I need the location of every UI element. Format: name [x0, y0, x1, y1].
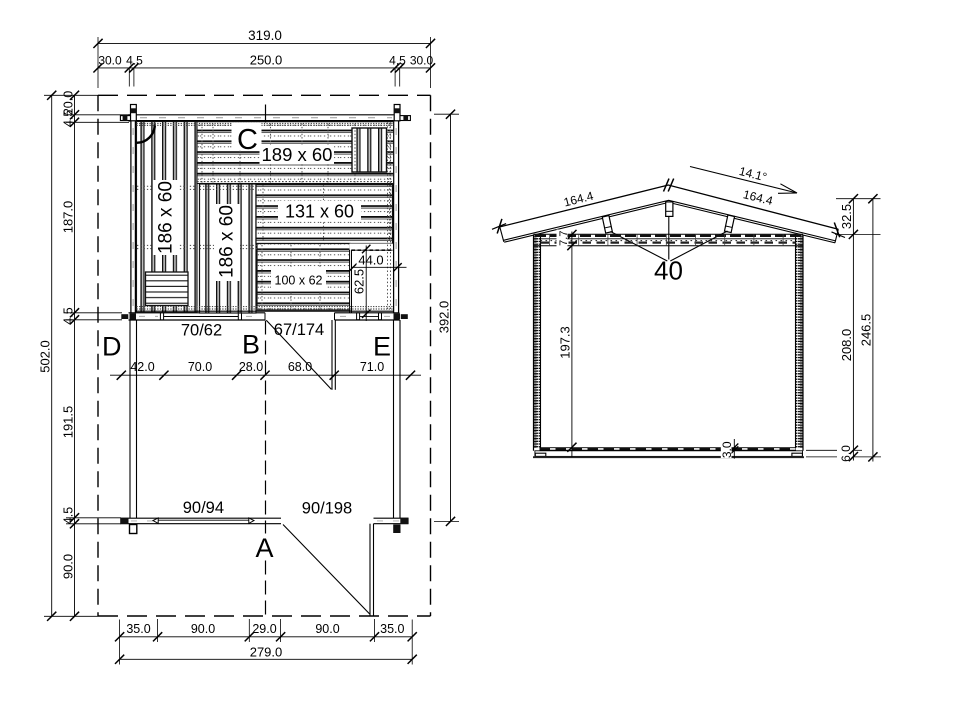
svg-text:186 x 60: 186 x 60	[156, 181, 177, 254]
svg-text:42.0: 42.0	[130, 360, 154, 374]
svg-text:70.0: 70.0	[188, 360, 212, 374]
svg-text:90/94: 90/94	[183, 499, 224, 517]
svg-text:70/62: 70/62	[181, 321, 222, 339]
svg-text:131 x 60: 131 x 60	[285, 202, 354, 222]
svg-text:246.5: 246.5	[858, 314, 873, 347]
svg-text:3.0: 3.0	[720, 441, 734, 458]
svg-text:E: E	[373, 332, 391, 362]
svg-text:319.0: 319.0	[248, 28, 282, 43]
svg-text:62.5: 62.5	[351, 269, 366, 294]
svg-text:197.3: 197.3	[558, 326, 573, 359]
svg-text:4.5: 4.5	[389, 54, 406, 68]
svg-text:30.0: 30.0	[98, 54, 122, 68]
svg-text:44.0: 44.0	[358, 252, 383, 267]
svg-text:279.0: 279.0	[250, 644, 283, 659]
svg-text:189 x 60: 189 x 60	[262, 144, 333, 165]
svg-text:29.0: 29.0	[252, 622, 276, 636]
svg-text:68.0: 68.0	[288, 360, 312, 374]
svg-text:90.0: 90.0	[315, 622, 339, 636]
svg-text:90.0: 90.0	[191, 622, 215, 636]
svg-text:67/174: 67/174	[274, 321, 324, 339]
svg-text:4.5: 4.5	[126, 54, 143, 68]
svg-text:35.0: 35.0	[380, 622, 404, 636]
svg-text:4.5: 4.5	[61, 507, 75, 524]
svg-text:90.0: 90.0	[60, 554, 75, 579]
svg-text:502.0: 502.0	[37, 340, 52, 373]
svg-text:40: 40	[654, 256, 683, 286]
svg-text:30.0: 30.0	[410, 54, 434, 68]
svg-text:90/198: 90/198	[302, 499, 352, 517]
svg-text:A: A	[255, 533, 273, 563]
svg-text:32.5: 32.5	[839, 204, 854, 229]
svg-text:100 x 62: 100 x 62	[275, 274, 323, 288]
svg-text:7.7: 7.7	[558, 231, 570, 246]
svg-text:C: C	[237, 124, 258, 156]
svg-text:187.0: 187.0	[60, 201, 75, 234]
svg-text:392.0: 392.0	[436, 301, 451, 334]
svg-text:208.0: 208.0	[839, 329, 854, 362]
svg-text:186 x 60: 186 x 60	[217, 205, 238, 278]
svg-text:6.0: 6.0	[839, 445, 853, 462]
svg-text:4.5: 4.5	[61, 110, 75, 127]
svg-text:D: D	[102, 332, 122, 362]
svg-text:28.0: 28.0	[239, 360, 263, 374]
svg-text:250.0: 250.0	[250, 53, 283, 68]
svg-text:B: B	[242, 330, 260, 360]
svg-text:71.0: 71.0	[360, 360, 384, 374]
svg-text:4.5: 4.5	[61, 307, 75, 324]
svg-text:35.0: 35.0	[126, 622, 150, 636]
svg-text:191.5: 191.5	[60, 406, 75, 439]
